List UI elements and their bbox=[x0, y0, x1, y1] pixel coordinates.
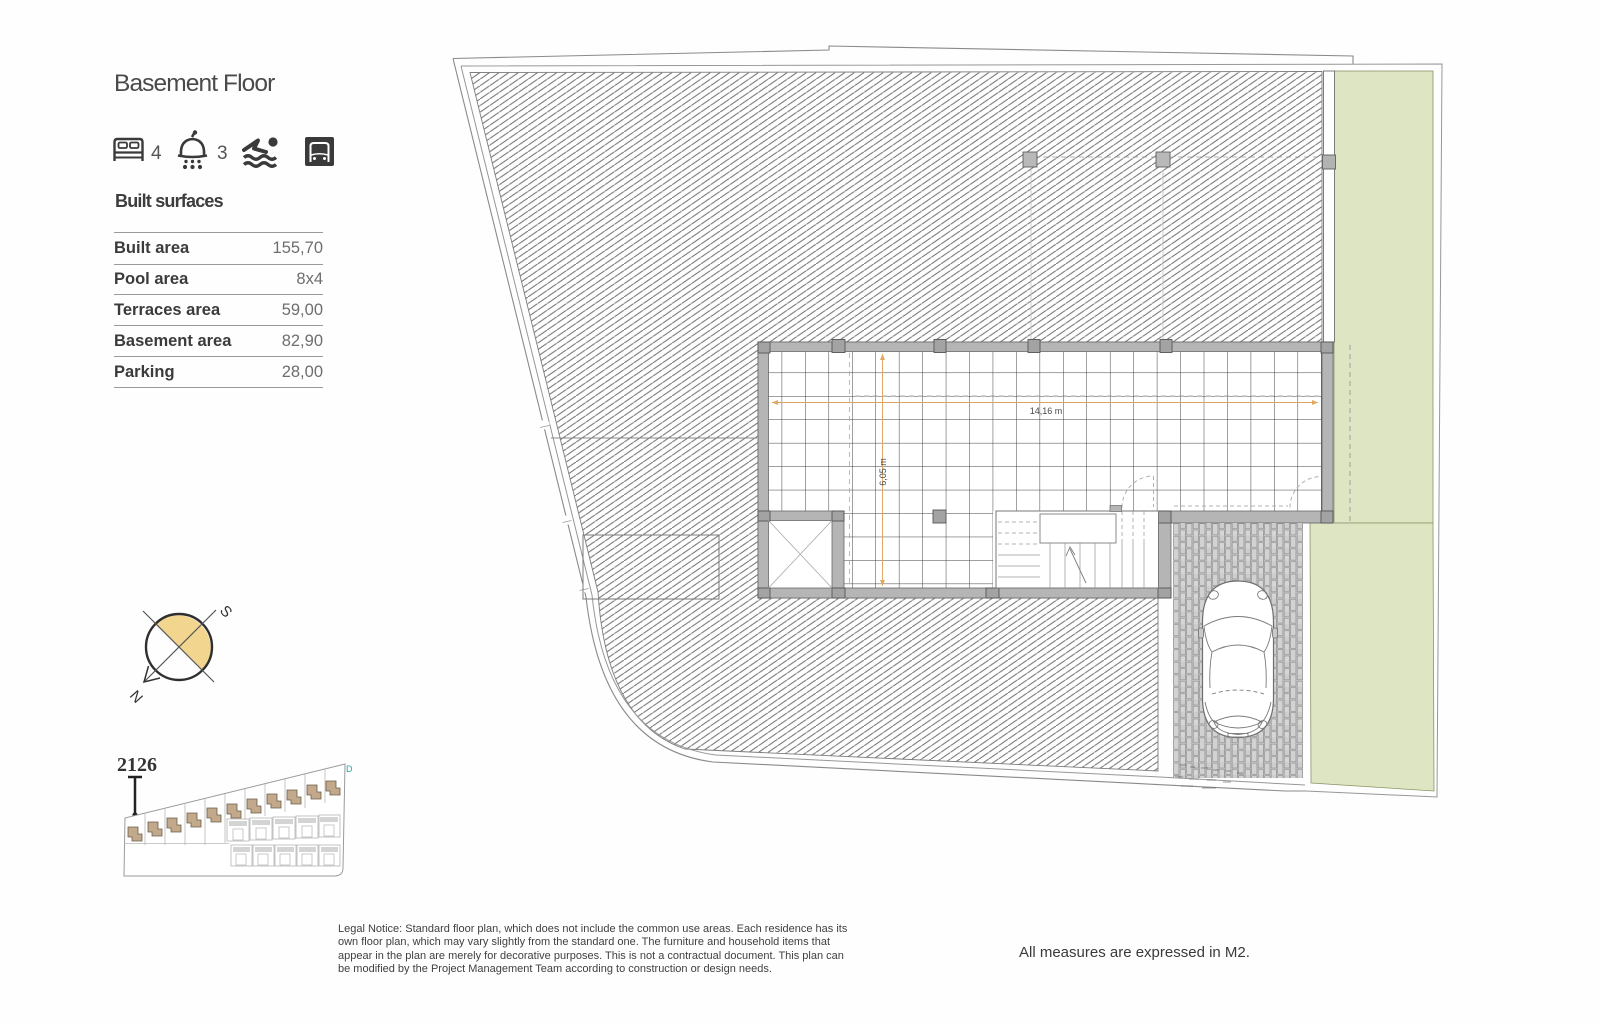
svg-text:2126: 2126 bbox=[117, 754, 157, 776]
svg-text:14,16 m: 14,16 m bbox=[1030, 406, 1063, 416]
svg-text:N: N bbox=[126, 687, 146, 706]
svg-text:D: D bbox=[346, 764, 353, 774]
svg-text:6,05 m: 6,05 m bbox=[878, 458, 888, 486]
svg-text:S: S bbox=[216, 602, 235, 621]
